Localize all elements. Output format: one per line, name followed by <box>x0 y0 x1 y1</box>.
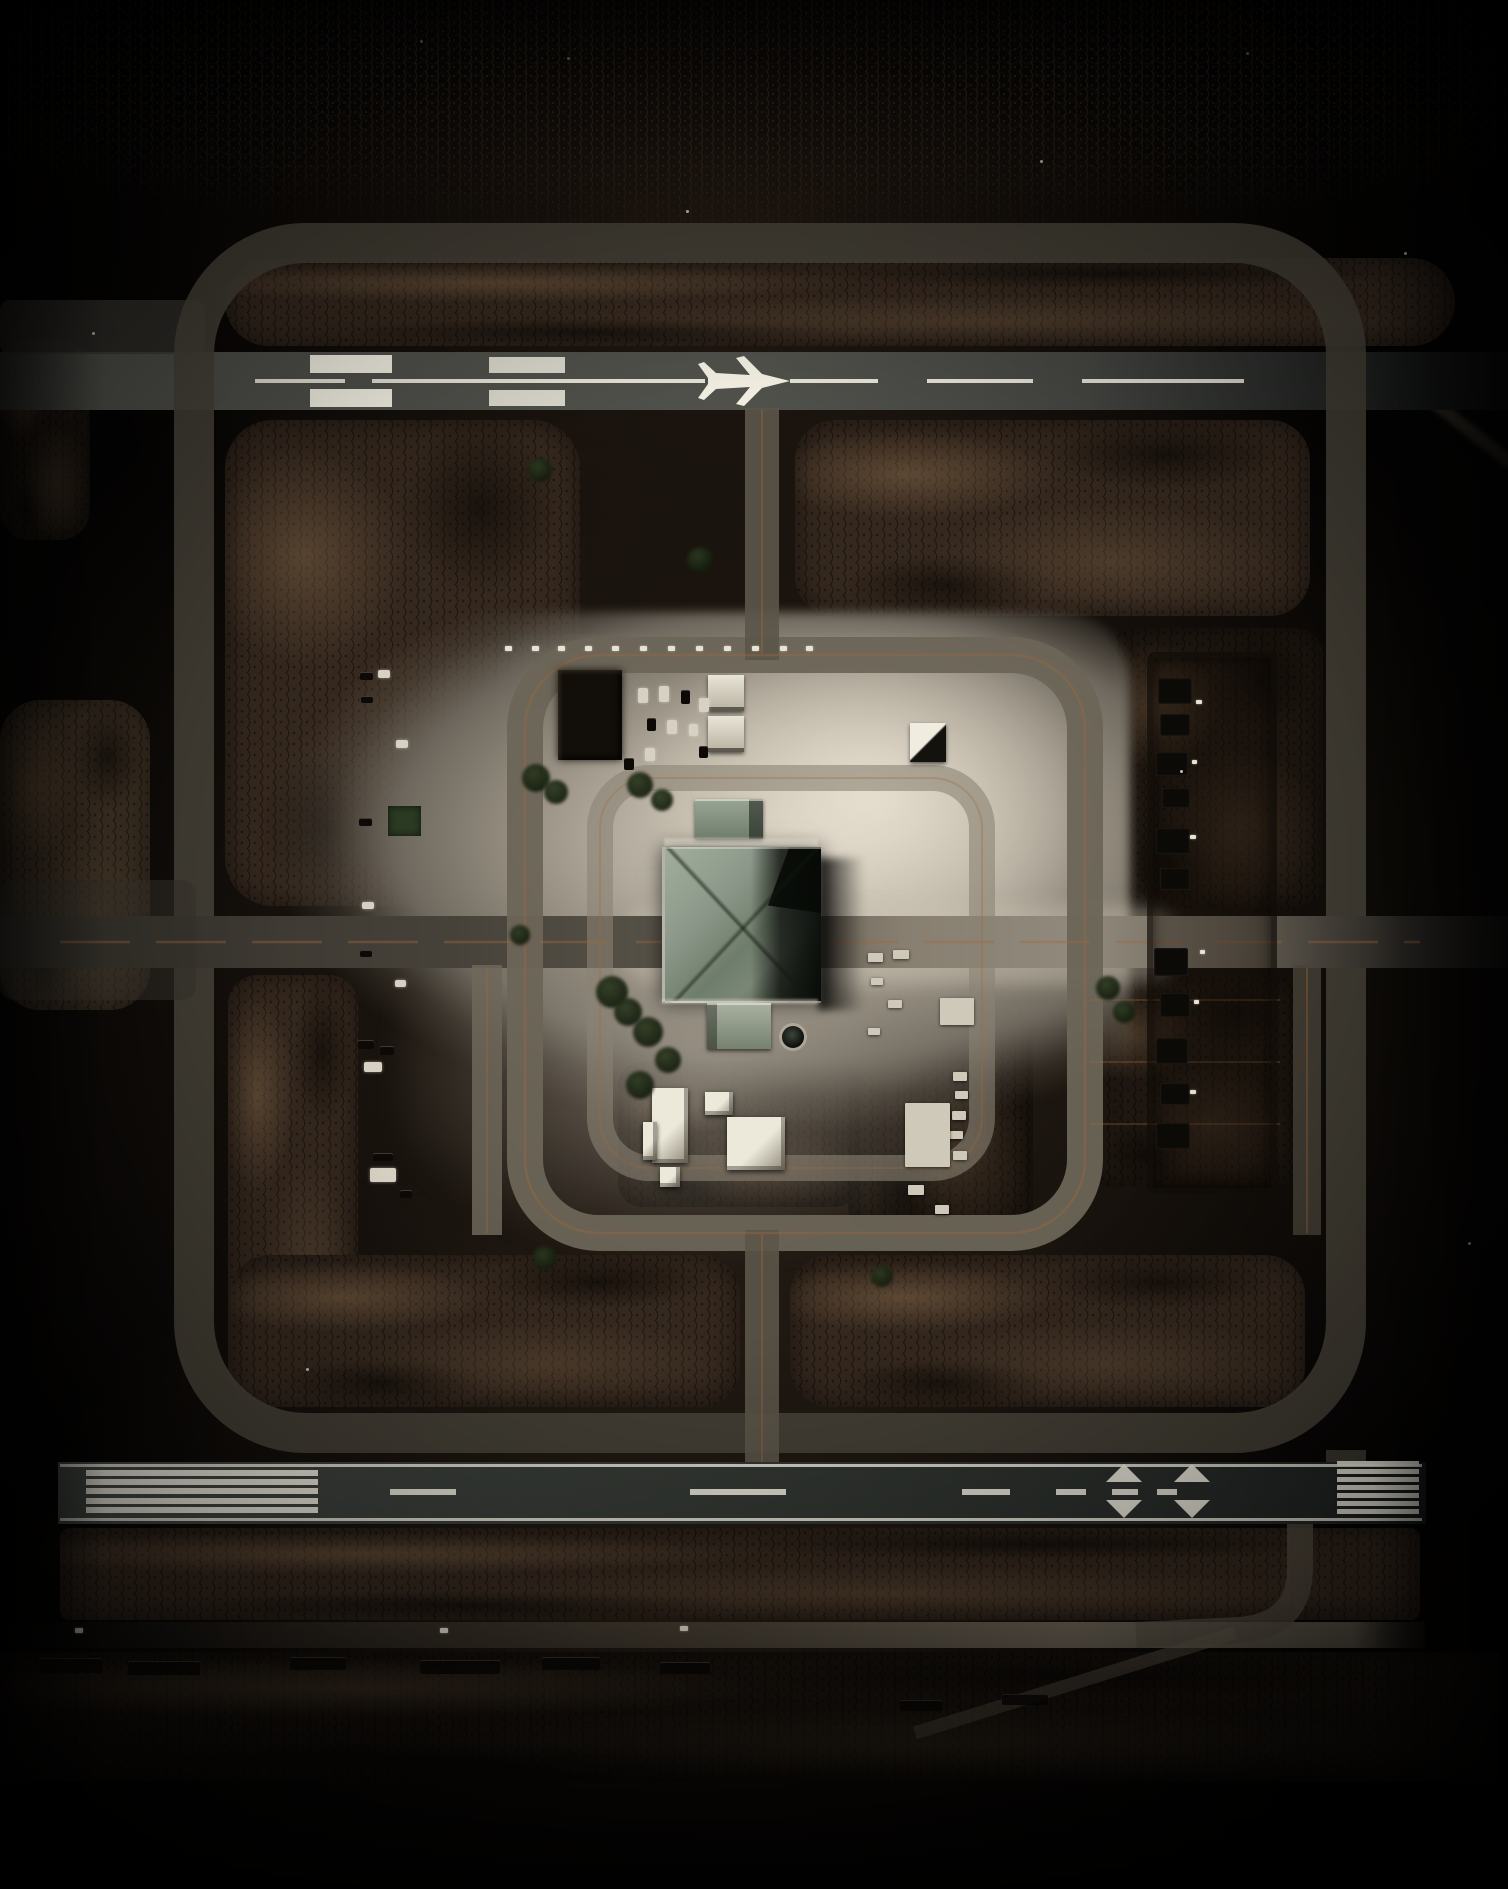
vehicle <box>358 1040 374 1049</box>
vehicle <box>681 690 690 704</box>
vehicle <box>638 688 648 703</box>
vehicle <box>380 1046 394 1055</box>
compound-speck <box>1196 700 1202 704</box>
parked-vehicle-dot <box>505 646 512 651</box>
white-structure <box>871 978 883 985</box>
vehicle <box>373 1153 393 1161</box>
vehicle <box>378 670 390 678</box>
tree <box>533 1246 557 1270</box>
white-structure <box>953 1072 967 1081</box>
south-cluster-building <box>660 1167 680 1187</box>
vehicle <box>361 696 373 703</box>
parked-vehicle-dot <box>640 646 647 651</box>
compound-cell <box>1156 752 1188 776</box>
compound-cell <box>1156 1123 1190 1149</box>
white-structure <box>888 1000 902 1008</box>
parked-vehicle-dot <box>780 646 787 651</box>
vehicle <box>647 718 656 731</box>
white-structure <box>893 950 909 959</box>
vehicle-dark-row <box>542 1657 600 1670</box>
compound-speck <box>1192 760 1197 764</box>
compound-speck <box>1190 835 1196 839</box>
scatter-objects <box>0 0 1508 1889</box>
vehicle <box>370 1168 396 1182</box>
south-cluster-building <box>705 1092 733 1115</box>
white-structure <box>940 998 974 1025</box>
tree <box>528 458 552 482</box>
vehicle <box>400 1190 412 1198</box>
tree <box>510 925 530 945</box>
white-structure <box>955 1091 968 1099</box>
tree <box>626 1071 654 1099</box>
parked-vehicle-dot <box>558 646 565 651</box>
vehicle <box>667 720 677 734</box>
white-structure <box>908 1185 924 1195</box>
vehicle-dark-row <box>660 1662 710 1674</box>
vehicle <box>689 724 698 736</box>
vehicle-dark-row <box>40 1658 102 1673</box>
parked-vehicle-dot <box>724 646 731 651</box>
compound-cell <box>1158 678 1192 704</box>
compound-cell <box>1156 1038 1188 1064</box>
compound-cell <box>1162 788 1190 808</box>
tree <box>871 1265 893 1287</box>
parked-vehicle-dot <box>585 646 592 651</box>
vehicle <box>359 818 372 826</box>
light-speck <box>1404 252 1407 255</box>
light-speck <box>1040 160 1043 163</box>
white-structure <box>952 1111 966 1120</box>
tree <box>633 1017 663 1047</box>
tree <box>1113 1001 1135 1023</box>
compound-speck <box>1190 1090 1196 1094</box>
light-speck <box>567 57 570 60</box>
compound-cell <box>1160 993 1190 1017</box>
light-speck <box>686 210 689 213</box>
vehicle <box>396 740 408 748</box>
vehicle-dark-row <box>900 1700 942 1711</box>
vehicle <box>360 950 372 957</box>
tree <box>655 1047 681 1073</box>
light-speck <box>1246 52 1249 55</box>
compound-cell <box>1160 868 1190 890</box>
tree <box>687 547 713 573</box>
vehicle <box>624 758 634 770</box>
aerial-photo <box>0 0 1508 1889</box>
light-speck <box>306 1368 309 1371</box>
white-structure <box>905 1103 950 1167</box>
parked-vehicle-dot <box>532 646 539 651</box>
south-cluster-building <box>727 1117 785 1170</box>
compound-speck <box>1194 1000 1199 1004</box>
white-structure <box>950 1131 963 1139</box>
vehicle-dark-row <box>420 1660 500 1674</box>
light-speck <box>1180 770 1183 773</box>
compound-cell <box>1156 828 1190 854</box>
tree <box>651 789 673 811</box>
compound-cell <box>1154 948 1188 976</box>
parked-vehicle-dot <box>696 646 703 651</box>
south-cluster-building <box>652 1088 688 1163</box>
white-structure <box>868 1028 880 1035</box>
white-structure <box>868 953 883 962</box>
vehicle <box>360 672 373 680</box>
light-speck <box>1468 1242 1471 1245</box>
vehicle <box>395 980 406 987</box>
light-speck <box>92 332 95 335</box>
white-structure <box>935 1205 949 1214</box>
parked-vehicle-dot <box>668 646 675 651</box>
vehicle-dark-row <box>1002 1694 1048 1705</box>
tree <box>1096 976 1120 1000</box>
road-vehicle-dot <box>440 1628 448 1633</box>
vehicle-dark-row <box>290 1657 346 1670</box>
compound-speck <box>1200 950 1205 954</box>
tree <box>627 772 653 798</box>
road-vehicle-dot <box>75 1628 83 1633</box>
white-structure <box>953 1151 967 1160</box>
vehicle <box>645 748 655 761</box>
compound-cell <box>1160 1083 1190 1105</box>
vehicle <box>699 698 709 712</box>
parked-vehicle-dot <box>612 646 619 651</box>
vehicle-dark-row <box>128 1661 200 1675</box>
compound-cell <box>1160 714 1190 736</box>
south-cluster-building <box>643 1122 657 1160</box>
parked-vehicle-dot <box>806 646 813 651</box>
vehicle <box>362 902 374 909</box>
vehicle <box>364 1062 382 1072</box>
light-speck <box>420 40 423 43</box>
vehicle <box>699 746 708 758</box>
road-vehicle-dot <box>680 1626 688 1631</box>
vehicle <box>659 686 669 702</box>
tree <box>544 780 568 804</box>
parked-vehicle-dot <box>752 646 759 651</box>
